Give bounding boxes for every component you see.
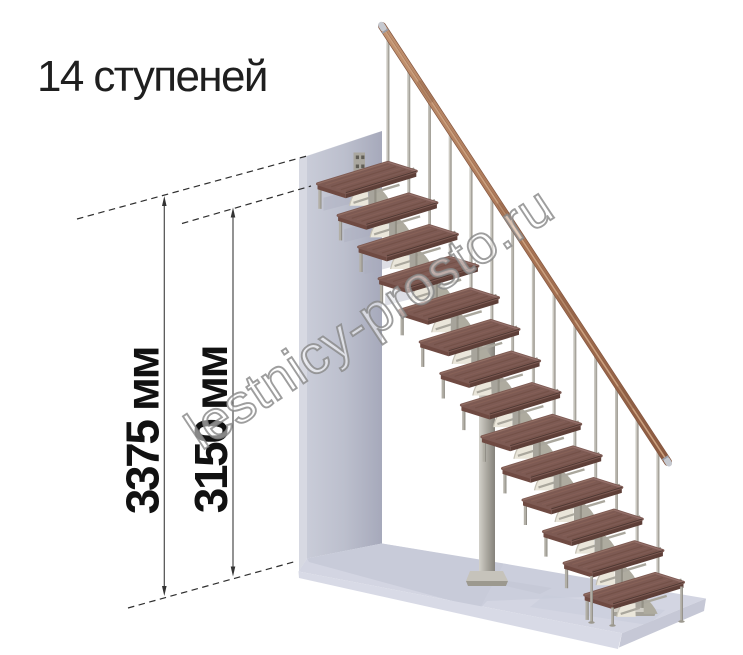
svg-text:14 ступеней: 14 ступеней [37, 52, 267, 101]
svg-text:3375 мм: 3375 мм [117, 348, 169, 514]
